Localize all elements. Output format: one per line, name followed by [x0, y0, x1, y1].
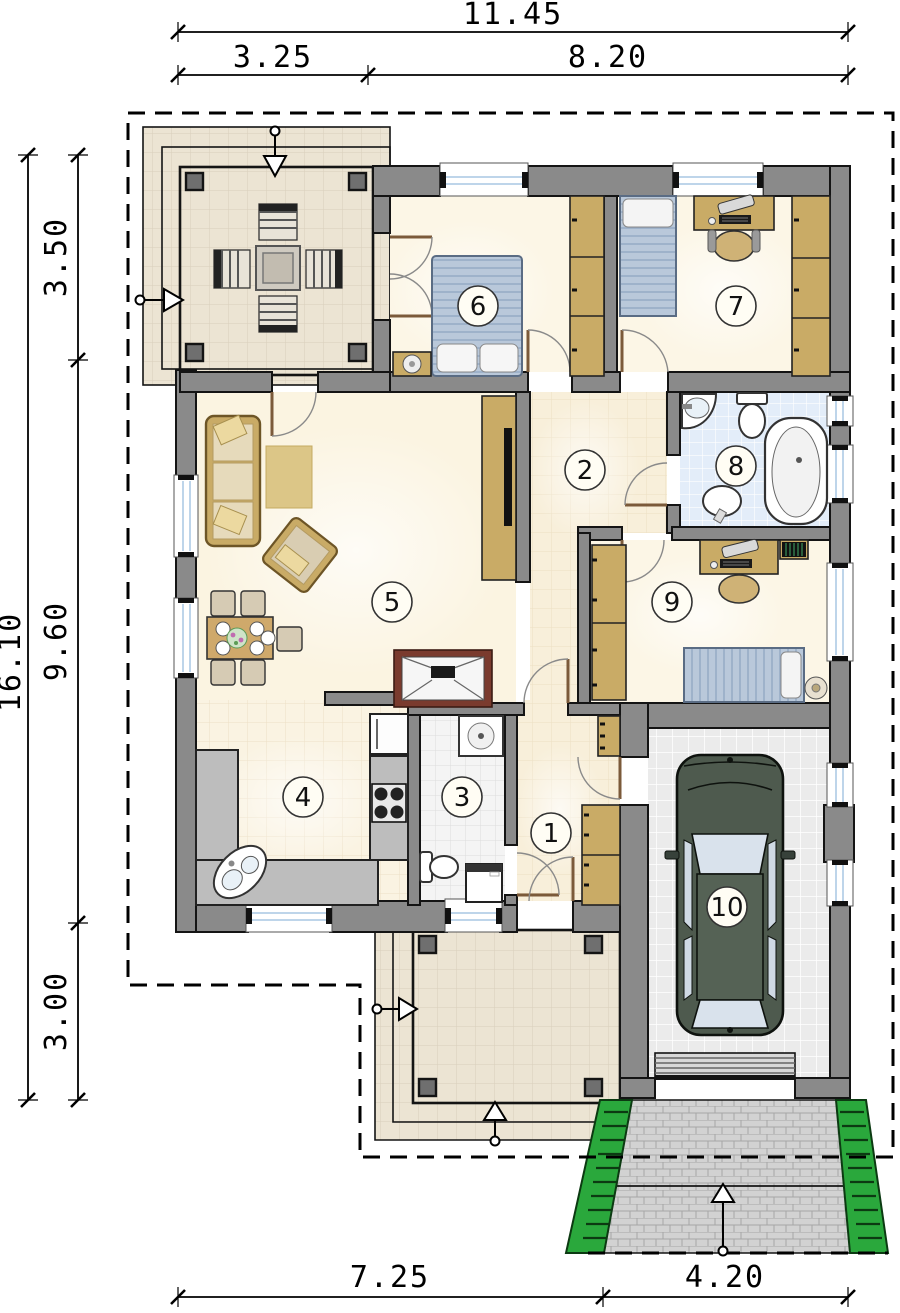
- tv: [504, 428, 512, 526]
- room-number-3: 3: [454, 783, 471, 813]
- washing-machine: [466, 864, 502, 902]
- window: [827, 396, 853, 426]
- room-number-6: 6: [470, 292, 487, 322]
- window: [174, 598, 198, 678]
- dim-label-top-right: 8.20: [568, 40, 648, 75]
- wardrobe: [592, 545, 626, 700]
- dim-label-bottom-right: 4.20: [685, 1260, 765, 1295]
- desk-chair: [719, 575, 759, 603]
- room-number-5: 5: [384, 588, 401, 618]
- room-label-10: 10: [707, 887, 747, 927]
- room-label-8: 8: [716, 446, 756, 486]
- window: [827, 563, 853, 661]
- terrace-post: [419, 936, 436, 953]
- top-terrace: [143, 127, 390, 385]
- window: [445, 899, 502, 932]
- dim-top-segments: 3.25 8.20: [171, 40, 855, 85]
- room-label-5: 5: [372, 582, 412, 622]
- desk: [700, 539, 778, 574]
- dim-label-left-bottom: 3.00: [39, 971, 74, 1051]
- keyboard: [720, 559, 752, 568]
- window: [440, 163, 528, 196]
- windshield: [692, 834, 768, 874]
- table-plant: [227, 628, 247, 648]
- dim-label-top-total: 11.45: [463, 0, 563, 32]
- room-number-4: 4: [295, 783, 312, 813]
- nightstand: [393, 352, 431, 376]
- desk: [694, 194, 774, 230]
- fireplace: [394, 650, 492, 707]
- room-number-2: 2: [577, 456, 594, 486]
- shower: [459, 716, 503, 756]
- window: [174, 475, 198, 557]
- room-number-1: 1: [543, 819, 560, 849]
- mouse: [711, 562, 718, 569]
- window: [827, 860, 853, 906]
- wardrobe: [570, 196, 604, 376]
- wardrobe: [792, 196, 830, 376]
- room-number-9: 9: [664, 588, 681, 618]
- plant: [805, 677, 827, 699]
- single-bed: [620, 196, 676, 316]
- dim-bottom-segments: 7.25 4.20: [171, 1260, 855, 1307]
- toilet: [737, 393, 767, 438]
- stove: [372, 784, 406, 822]
- mouse: [709, 218, 716, 225]
- room-label-9: 9: [652, 582, 692, 622]
- corridor-floor-lower: [530, 533, 578, 715]
- bathtub: [765, 418, 827, 524]
- room-label-6: 6: [458, 286, 498, 326]
- terrace-post: [186, 173, 203, 190]
- room-number-10: 10: [710, 893, 743, 923]
- room-label-1: 1: [531, 813, 571, 853]
- terrace-post: [186, 344, 203, 361]
- dim-top-total: 11.45: [171, 0, 855, 42]
- bookshelf: [780, 540, 808, 559]
- single-bed: [684, 648, 804, 702]
- dim-label-left-total: 16.10: [0, 612, 28, 712]
- side-mirror: [781, 851, 795, 859]
- rear-window: [692, 1000, 768, 1028]
- keyboard: [719, 215, 751, 224]
- floor-plan-page: 1 2 3 4 5 6 7 8 9 10 11.45 3.25 8.20 16.…: [0, 0, 900, 1313]
- garage-door: [655, 1053, 795, 1080]
- fridge: [370, 714, 408, 754]
- window: [673, 163, 763, 196]
- terrace-post: [349, 173, 366, 190]
- terrace-post: [585, 1079, 602, 1096]
- terrace-post: [419, 1079, 436, 1096]
- dim-left-segments: 3.50 9.60 3.00: [39, 148, 88, 1107]
- room-number-7: 7: [728, 292, 745, 322]
- room-label-7: 7: [716, 286, 756, 326]
- sofa: [206, 415, 260, 546]
- room-label-3: 3: [442, 777, 482, 817]
- dim-label-top-left: 3.25: [233, 40, 313, 75]
- driveway: [566, 1100, 888, 1253]
- dim-left-total: 16.10: [0, 148, 38, 1107]
- side-mirror: [665, 851, 679, 859]
- room-label-4: 4: [283, 777, 323, 817]
- terrace-post: [349, 344, 366, 361]
- room-label-2: 2: [565, 450, 605, 490]
- room-number-8: 8: [728, 452, 745, 482]
- floor-plan-drawing: 1 2 3 4 5 6 7 8 9 10 11.45 3.25 8.20 16.…: [0, 0, 900, 1313]
- window: [827, 763, 853, 807]
- terrace-post: [585, 936, 602, 953]
- dim-label-bottom-left: 7.25: [350, 1260, 430, 1295]
- dim-label-left-top: 3.50: [39, 217, 74, 297]
- tv-cabinet: [482, 396, 516, 580]
- rug: [266, 446, 312, 508]
- dim-label-left-middle: 9.60: [39, 601, 74, 681]
- window: [827, 445, 853, 503]
